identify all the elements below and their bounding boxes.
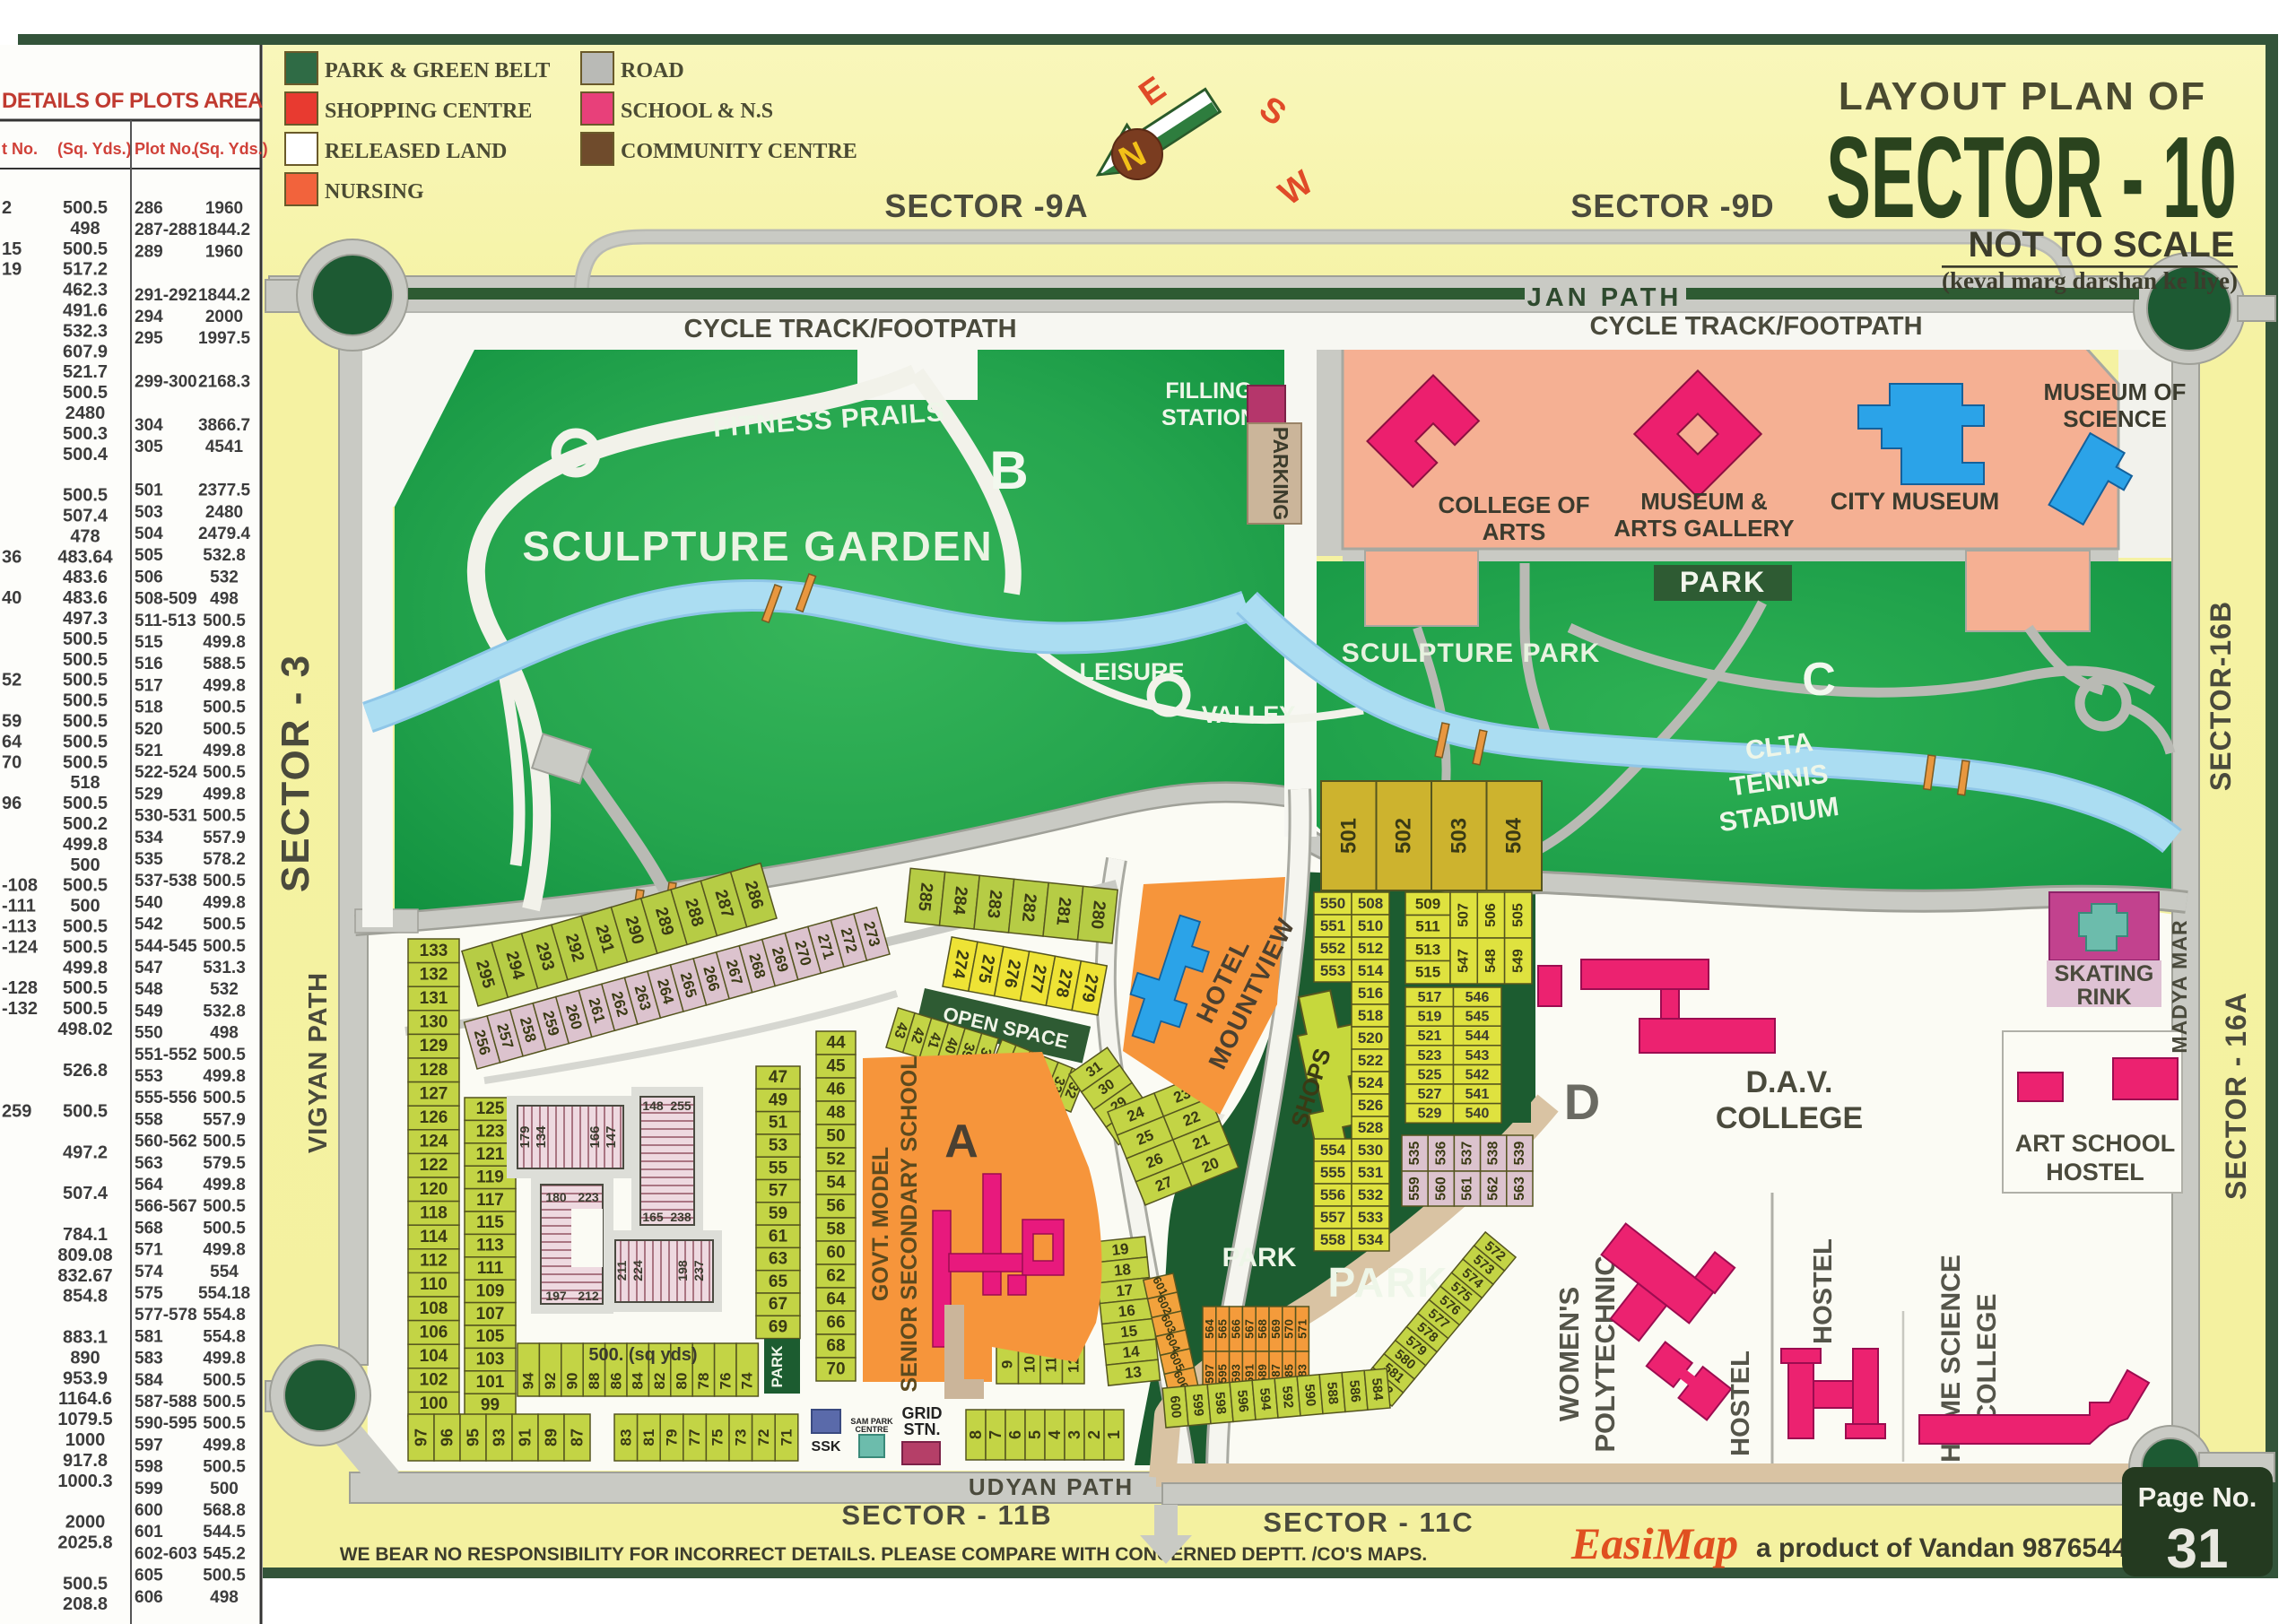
- svg-text:81: 81: [640, 1429, 657, 1446]
- svg-text:594: 594: [1257, 1387, 1274, 1411]
- svg-text:491.6: 491.6: [63, 301, 108, 321]
- svg-text:541: 541: [1465, 1087, 1490, 1102]
- svg-text:500.5: 500.5: [203, 1197, 246, 1216]
- svg-text:510: 510: [1358, 917, 1383, 934]
- svg-text:499.8: 499.8: [203, 676, 246, 695]
- svg-text:500.5: 500.5: [63, 876, 108, 896]
- svg-text:532: 532: [210, 568, 239, 586]
- svg-text:SECTOR-16B: SECTOR-16B: [2205, 601, 2237, 791]
- svg-text:WE BEAR NO RESPONSIBILITY FOR: WE BEAR NO RESPONSIBILITY FOR INCORRECT …: [340, 1544, 1428, 1565]
- svg-text:SCHOOL & N.S: SCHOOL & N.S: [621, 100, 773, 123]
- svg-text:500: 500: [70, 897, 100, 916]
- svg-text:49: 49: [769, 1091, 787, 1110]
- svg-text:499.8: 499.8: [203, 1436, 246, 1455]
- svg-text:64: 64: [2, 732, 22, 751]
- svg-text:2479.4: 2479.4: [198, 525, 251, 543]
- svg-text:132: 132: [420, 965, 448, 984]
- svg-text:83: 83: [617, 1429, 634, 1446]
- svg-text:505: 505: [135, 546, 163, 565]
- svg-text:500.5: 500.5: [203, 1089, 246, 1107]
- svg-text:128: 128: [420, 1061, 448, 1080]
- svg-text:305: 305: [135, 438, 163, 456]
- svg-text:534: 534: [1358, 1231, 1384, 1248]
- svg-text:74: 74: [739, 1372, 756, 1389]
- svg-text:51: 51: [769, 1114, 788, 1133]
- svg-text:6: 6: [1006, 1430, 1024, 1439]
- svg-text:809.08: 809.08: [57, 1246, 112, 1265]
- svg-text:542: 542: [135, 916, 163, 934]
- svg-text:2025.8: 2025.8: [57, 1533, 112, 1553]
- svg-text:63: 63: [769, 1250, 787, 1269]
- svg-text:94: 94: [520, 1372, 537, 1389]
- svg-text:499.8: 499.8: [203, 1067, 246, 1086]
- svg-text:520: 520: [135, 720, 163, 739]
- svg-text:506: 506: [1483, 903, 1499, 927]
- svg-text:POLYTECHNIC: POLYTECHNIC: [1589, 1255, 1621, 1452]
- svg-text:-128: -128: [2, 978, 38, 998]
- svg-text:109: 109: [476, 1281, 505, 1300]
- svg-text:571: 571: [1296, 1319, 1309, 1339]
- svg-text:500.5: 500.5: [203, 1393, 246, 1411]
- svg-text:102: 102: [420, 1371, 448, 1390]
- svg-text:GOVT. MODEL: GOVT. MODEL: [868, 1147, 893, 1301]
- svg-text:581: 581: [135, 1327, 163, 1346]
- svg-text:532: 532: [210, 980, 239, 999]
- svg-text:47: 47: [769, 1068, 787, 1087]
- svg-text:507.4: 507.4: [63, 1184, 109, 1203]
- svg-text:FILLING: FILLING: [1165, 378, 1252, 404]
- svg-text:95: 95: [465, 1429, 483, 1446]
- svg-text:77: 77: [686, 1429, 703, 1446]
- svg-text:515: 515: [135, 633, 163, 652]
- svg-text:SECTOR - 11C: SECTOR - 11C: [1263, 1507, 1474, 1538]
- svg-text:525: 525: [1418, 1067, 1442, 1082]
- svg-text:511-513: 511-513: [135, 612, 196, 630]
- svg-text:570: 570: [1283, 1319, 1296, 1339]
- svg-text:50: 50: [826, 1127, 845, 1146]
- svg-text:40: 40: [2, 588, 22, 608]
- svg-text:497.2: 497.2: [63, 1142, 108, 1162]
- svg-text:197: 197: [545, 1289, 567, 1303]
- svg-text:89: 89: [543, 1429, 561, 1446]
- svg-text:212: 212: [578, 1289, 599, 1303]
- svg-text:71: 71: [778, 1429, 796, 1446]
- svg-text:114: 114: [420, 1228, 448, 1246]
- svg-text:57: 57: [769, 1182, 787, 1201]
- svg-text:517: 517: [1418, 990, 1442, 1005]
- svg-text:565: 565: [1216, 1319, 1230, 1339]
- svg-text:117: 117: [476, 1191, 504, 1210]
- svg-text:557: 557: [1320, 1209, 1345, 1226]
- svg-text:578.2: 578.2: [203, 850, 246, 869]
- svg-text:EasiMap: EasiMap: [1570, 1518, 1738, 1568]
- svg-text:80: 80: [674, 1373, 691, 1390]
- svg-text:522: 522: [1358, 1052, 1383, 1069]
- svg-text:522-524: 522-524: [135, 763, 197, 782]
- svg-text:564: 564: [135, 1176, 163, 1194]
- svg-text:ARTS: ARTS: [1483, 518, 1546, 545]
- svg-text:588.5: 588.5: [203, 655, 246, 673]
- svg-text:113: 113: [476, 1237, 504, 1255]
- svg-text:224: 224: [631, 1260, 645, 1281]
- svg-text:129: 129: [420, 1037, 448, 1055]
- svg-text:18: 18: [1113, 1261, 1132, 1280]
- svg-text:289: 289: [135, 242, 163, 261]
- svg-text:500.5: 500.5: [203, 1133, 246, 1151]
- svg-text:UDYAN PATH: UDYAN PATH: [969, 1473, 1134, 1500]
- svg-text:508: 508: [1358, 895, 1383, 912]
- svg-text:92: 92: [542, 1373, 559, 1390]
- svg-text:7: 7: [987, 1430, 1004, 1439]
- svg-text:501: 501: [135, 482, 163, 500]
- svg-text:286: 286: [135, 199, 163, 218]
- svg-text:100: 100: [420, 1394, 448, 1413]
- svg-text:78: 78: [695, 1373, 712, 1390]
- svg-text:554.8: 554.8: [203, 1327, 246, 1346]
- svg-text:84: 84: [630, 1372, 647, 1389]
- svg-text:854.8: 854.8: [63, 1287, 108, 1307]
- svg-text:509: 509: [1415, 895, 1440, 912]
- svg-text:560-562: 560-562: [135, 1133, 197, 1151]
- svg-text:500.5: 500.5: [63, 671, 108, 690]
- svg-text:STATION: STATION: [1161, 405, 1257, 430]
- svg-text:562: 562: [1486, 1177, 1501, 1201]
- svg-text:590-595: 590-595: [135, 1414, 197, 1433]
- svg-text:598: 598: [1212, 1391, 1229, 1414]
- svg-text:ARTS GALLERY: ARTS GALLERY: [1613, 515, 1794, 542]
- svg-text:PARK: PARK: [1222, 1243, 1297, 1272]
- svg-text:584: 584: [1369, 1377, 1386, 1402]
- svg-text:512: 512: [1358, 940, 1383, 957]
- svg-text:ART SCHOOL: ART SCHOOL: [2015, 1130, 2176, 1157]
- svg-text:(Sq. Yds.): (Sq. Yds.): [57, 140, 132, 158]
- svg-text:890: 890: [70, 1348, 100, 1368]
- svg-text:521.7: 521.7: [63, 362, 108, 382]
- svg-text:514: 514: [1358, 962, 1384, 979]
- svg-text:86: 86: [607, 1373, 624, 1390]
- svg-text:68: 68: [826, 1337, 845, 1356]
- svg-text:211: 211: [614, 1260, 629, 1281]
- svg-text:72: 72: [755, 1429, 772, 1446]
- svg-text:498: 498: [210, 1588, 239, 1607]
- svg-text:291-292: 291-292: [135, 286, 197, 305]
- svg-text:568: 568: [1256, 1319, 1269, 1339]
- svg-text:500.5: 500.5: [203, 1414, 246, 1433]
- svg-text:-124: -124: [2, 937, 39, 957]
- svg-text:112: 112: [420, 1252, 448, 1271]
- svg-text:287-288: 287-288: [135, 221, 197, 239]
- svg-text:104: 104: [420, 1347, 448, 1366]
- svg-text:59: 59: [2, 712, 22, 732]
- svg-text:554: 554: [210, 1263, 239, 1281]
- svg-text:t No.: t No.: [2, 140, 38, 158]
- svg-text:499.8: 499.8: [203, 1176, 246, 1194]
- svg-text:499.8: 499.8: [203, 785, 246, 803]
- svg-text:17: 17: [1115, 1281, 1134, 1300]
- svg-text:545: 545: [1465, 1010, 1490, 1025]
- svg-text:8: 8: [967, 1430, 985, 1439]
- svg-text:606: 606: [135, 1588, 163, 1607]
- svg-text:96: 96: [439, 1429, 457, 1446]
- svg-text:517.2: 517.2: [63, 260, 108, 280]
- svg-text:56: 56: [826, 1197, 845, 1216]
- svg-text:123: 123: [476, 1123, 505, 1142]
- svg-text:593: 593: [1230, 1364, 1243, 1384]
- svg-text:575: 575: [135, 1284, 163, 1303]
- svg-text:165: 165: [642, 1210, 664, 1224]
- svg-text:500.5: 500.5: [63, 712, 108, 732]
- svg-text:500: 500: [70, 855, 100, 875]
- svg-text:VALLEY: VALLEY: [1202, 701, 1296, 728]
- svg-text:48: 48: [826, 1104, 845, 1123]
- svg-text:518: 518: [70, 773, 100, 793]
- svg-text:238: 238: [670, 1210, 691, 1224]
- svg-text:500.5: 500.5: [203, 1046, 246, 1064]
- svg-text:COLLEGE OF: COLLEGE OF: [1439, 491, 1590, 518]
- svg-text:125: 125: [476, 1099, 505, 1118]
- svg-text:555-556: 555-556: [135, 1089, 197, 1107]
- svg-text:127: 127: [420, 1084, 448, 1103]
- svg-text:2: 2: [2, 198, 12, 218]
- svg-text:4: 4: [1046, 1430, 1064, 1439]
- svg-text:499.8: 499.8: [203, 633, 246, 652]
- svg-text:282: 282: [1018, 892, 1039, 923]
- svg-text:499.8: 499.8: [203, 1241, 246, 1260]
- svg-text:498: 498: [70, 219, 100, 239]
- svg-text:500.5: 500.5: [63, 239, 108, 259]
- svg-text:506: 506: [135, 568, 163, 586]
- svg-text:500.5: 500.5: [203, 612, 246, 630]
- svg-text:PARKING: PARKING: [1269, 427, 1292, 520]
- svg-text:64: 64: [826, 1290, 846, 1309]
- svg-text:87: 87: [569, 1429, 587, 1446]
- svg-text:544: 544: [1465, 1029, 1490, 1044]
- svg-text:551-552: 551-552: [135, 1046, 197, 1064]
- svg-text:500: 500: [210, 1480, 239, 1498]
- svg-text:917.8: 917.8: [63, 1451, 108, 1471]
- svg-text:-132: -132: [2, 999, 38, 1019]
- svg-text:498: 498: [210, 590, 239, 609]
- svg-text:D.A.V.: D.A.V.: [1745, 1065, 1832, 1099]
- svg-text:563: 563: [135, 1154, 163, 1173]
- svg-text:CITY MUSEUM: CITY MUSEUM: [1831, 488, 2000, 515]
- svg-text:122: 122: [420, 1156, 448, 1175]
- svg-text:556: 556: [1320, 1186, 1345, 1203]
- svg-text:554.8: 554.8: [203, 1306, 246, 1324]
- svg-text:563: 563: [1512, 1177, 1527, 1201]
- svg-text:500.5: 500.5: [203, 1219, 246, 1238]
- svg-text:567: 567: [1242, 1319, 1256, 1339]
- svg-text:284: 284: [949, 885, 970, 916]
- svg-text:36: 36: [2, 547, 22, 567]
- svg-text:561: 561: [1460, 1177, 1475, 1201]
- svg-text:SCULPTURE GARDEN: SCULPTURE GARDEN: [522, 523, 993, 569]
- svg-text:LEISURE: LEISURE: [1079, 658, 1184, 685]
- svg-text:499.8: 499.8: [203, 1350, 246, 1368]
- svg-text:574: 574: [135, 1263, 163, 1281]
- svg-text:462.3: 462.3: [63, 281, 108, 300]
- svg-text:148: 148: [642, 1099, 664, 1113]
- svg-text:Page No.: Page No.: [2138, 1481, 2257, 1513]
- svg-text:500.5: 500.5: [63, 486, 108, 506]
- svg-text:600: 600: [1167, 1395, 1184, 1419]
- svg-text:GRID: GRID: [902, 1404, 943, 1422]
- svg-text:61: 61: [769, 1227, 788, 1246]
- svg-text:500.5: 500.5: [63, 650, 108, 670]
- svg-text:2168.3: 2168.3: [198, 373, 250, 392]
- svg-text:2377.5: 2377.5: [198, 482, 251, 500]
- svg-text:1000.3: 1000.3: [57, 1472, 112, 1491]
- svg-text:106: 106: [420, 1323, 448, 1342]
- svg-text:592: 592: [1279, 1385, 1296, 1409]
- svg-text:500. (sq yds): 500. (sq yds): [588, 1345, 697, 1365]
- svg-text:571: 571: [135, 1241, 163, 1260]
- svg-text:516: 516: [135, 655, 163, 673]
- svg-text:11: 11: [1043, 1357, 1060, 1373]
- svg-text:596: 596: [1234, 1389, 1251, 1412]
- svg-text:549: 549: [135, 1002, 163, 1020]
- svg-text:(keval marg darshan ke liye): (keval marg darshan ke liye): [1942, 267, 2238, 294]
- svg-text:4541: 4541: [205, 438, 244, 456]
- svg-text:598: 598: [135, 1458, 163, 1477]
- svg-text:2000: 2000: [205, 308, 243, 326]
- svg-text:CYCLE TRACK/FOOTPATH: CYCLE TRACK/FOOTPATH: [1589, 312, 1922, 341]
- svg-text:500.2: 500.2: [63, 814, 108, 834]
- svg-text:MUSEUM OF: MUSEUM OF: [2044, 378, 2187, 405]
- svg-text:534: 534: [135, 829, 163, 847]
- svg-text:507.4: 507.4: [63, 507, 109, 526]
- svg-text:499.8: 499.8: [203, 893, 246, 912]
- svg-text:524: 524: [1358, 1074, 1384, 1091]
- svg-text:44: 44: [826, 1034, 846, 1053]
- svg-text:1997.5: 1997.5: [198, 329, 251, 348]
- svg-text:88: 88: [586, 1373, 603, 1390]
- svg-text:66: 66: [826, 1314, 845, 1333]
- svg-text:531.3: 531.3: [203, 959, 246, 977]
- svg-text:537: 537: [1460, 1142, 1475, 1166]
- svg-text:503: 503: [1447, 818, 1471, 854]
- svg-text:478: 478: [70, 526, 100, 546]
- svg-text:2480: 2480: [65, 404, 106, 423]
- svg-text:587-588: 587-588: [135, 1393, 197, 1411]
- svg-text:NURSING: NURSING: [325, 180, 424, 204]
- svg-text:605: 605: [135, 1567, 163, 1585]
- svg-text:9: 9: [999, 1360, 1016, 1368]
- svg-text:280: 280: [1087, 899, 1109, 930]
- svg-text:HOSTEL: HOSTEL: [2046, 1159, 2144, 1185]
- svg-text:1960: 1960: [205, 199, 243, 218]
- svg-text:SECTOR - 16A: SECTOR - 16A: [2220, 992, 2252, 1200]
- svg-text:500.5: 500.5: [203, 872, 246, 890]
- svg-text:91: 91: [517, 1429, 535, 1446]
- svg-text:110: 110: [420, 1275, 448, 1294]
- svg-text:583: 583: [135, 1350, 163, 1368]
- svg-text:500.5: 500.5: [203, 807, 246, 826]
- svg-text:554.18: 554.18: [198, 1284, 250, 1303]
- svg-text:-113: -113: [2, 917, 37, 937]
- svg-text:120: 120: [420, 1180, 448, 1199]
- svg-text:130: 130: [420, 1013, 448, 1032]
- svg-text:1079.5: 1079.5: [57, 1410, 112, 1429]
- svg-text:483.64: 483.64: [57, 547, 113, 567]
- svg-text:519: 519: [1418, 1010, 1442, 1025]
- svg-text:511: 511: [1415, 918, 1439, 935]
- svg-text:557.9: 557.9: [203, 829, 246, 847]
- svg-text:500.5: 500.5: [203, 720, 246, 739]
- svg-text:D: D: [1564, 1073, 1600, 1130]
- svg-text:76: 76: [717, 1373, 734, 1390]
- svg-text:784.1: 784.1: [63, 1225, 108, 1245]
- svg-text:67: 67: [769, 1295, 787, 1314]
- svg-text:180: 180: [545, 1190, 567, 1204]
- svg-text:513: 513: [1415, 941, 1440, 958]
- svg-text:504: 504: [1502, 817, 1526, 854]
- svg-text:529: 529: [135, 785, 163, 803]
- svg-text:600: 600: [135, 1501, 163, 1520]
- svg-text:65: 65: [769, 1272, 788, 1291]
- svg-text:500.5: 500.5: [203, 1458, 246, 1477]
- svg-text:558: 558: [1320, 1231, 1345, 1248]
- svg-text:532.8: 532.8: [203, 1002, 246, 1020]
- svg-text:518: 518: [1358, 1007, 1383, 1024]
- svg-text:60: 60: [826, 1244, 845, 1263]
- svg-text:SCULPTURE PARK: SCULPTURE PARK: [1342, 638, 1600, 668]
- svg-text:579.5: 579.5: [203, 1154, 246, 1173]
- svg-text:595: 595: [1216, 1364, 1230, 1384]
- svg-text:54: 54: [826, 1174, 846, 1193]
- svg-text:295: 295: [135, 329, 163, 348]
- svg-text:237: 237: [691, 1260, 706, 1281]
- svg-text:126: 126: [420, 1108, 448, 1127]
- svg-text:500.5: 500.5: [203, 1371, 246, 1390]
- svg-text:551: 551: [1320, 917, 1345, 934]
- svg-text:SENIOR SECONDARY SCHOOL: SENIOR SECONDARY SCHOOL: [897, 1055, 922, 1392]
- svg-text:500.5: 500.5: [63, 937, 108, 957]
- svg-text:Plot No.: Plot No.: [135, 140, 196, 158]
- svg-text:SHOPPING CENTRE: SHOPPING CENTRE: [325, 100, 532, 123]
- svg-text:19: 19: [2, 260, 22, 280]
- svg-text:111: 111: [477, 1259, 504, 1278]
- svg-text:599: 599: [135, 1480, 163, 1498]
- svg-text:SECTOR -9A: SECTOR -9A: [884, 187, 1088, 224]
- svg-text:105: 105: [476, 1327, 505, 1346]
- svg-text:SKATING: SKATING: [2055, 961, 2154, 986]
- svg-text:550: 550: [1320, 895, 1345, 912]
- svg-text:WOMEN'S: WOMEN'S: [1553, 1287, 1585, 1421]
- svg-text:501: 501: [1336, 818, 1361, 854]
- svg-text:1960: 1960: [205, 242, 243, 261]
- svg-text:52: 52: [826, 1151, 845, 1169]
- svg-text:590: 590: [1301, 1384, 1318, 1407]
- svg-text:304: 304: [135, 416, 163, 435]
- svg-text:538: 538: [1486, 1142, 1501, 1166]
- svg-text:53: 53: [769, 1136, 787, 1155]
- svg-text:DETAILS OF PLOTS AREA: DETAILS OF PLOTS AREA: [2, 89, 263, 113]
- svg-text:SECTOR - 10: SECTOR - 10: [1826, 114, 2237, 242]
- svg-text:1844.2: 1844.2: [198, 286, 250, 305]
- svg-text:SSK: SSK: [812, 1439, 841, 1455]
- svg-text:499.8: 499.8: [63, 835, 108, 855]
- svg-text:COLLEGE: COLLEGE: [1972, 1293, 2002, 1423]
- svg-text:75: 75: [709, 1429, 726, 1446]
- svg-text:90: 90: [564, 1373, 581, 1390]
- svg-text:544-545: 544-545: [135, 937, 197, 956]
- svg-text:58: 58: [826, 1220, 845, 1239]
- svg-text:B: B: [989, 440, 1028, 500]
- svg-text:533: 533: [1358, 1209, 1383, 1226]
- svg-text:108: 108: [420, 1299, 448, 1318]
- svg-text:537-538: 537-538: [135, 872, 197, 890]
